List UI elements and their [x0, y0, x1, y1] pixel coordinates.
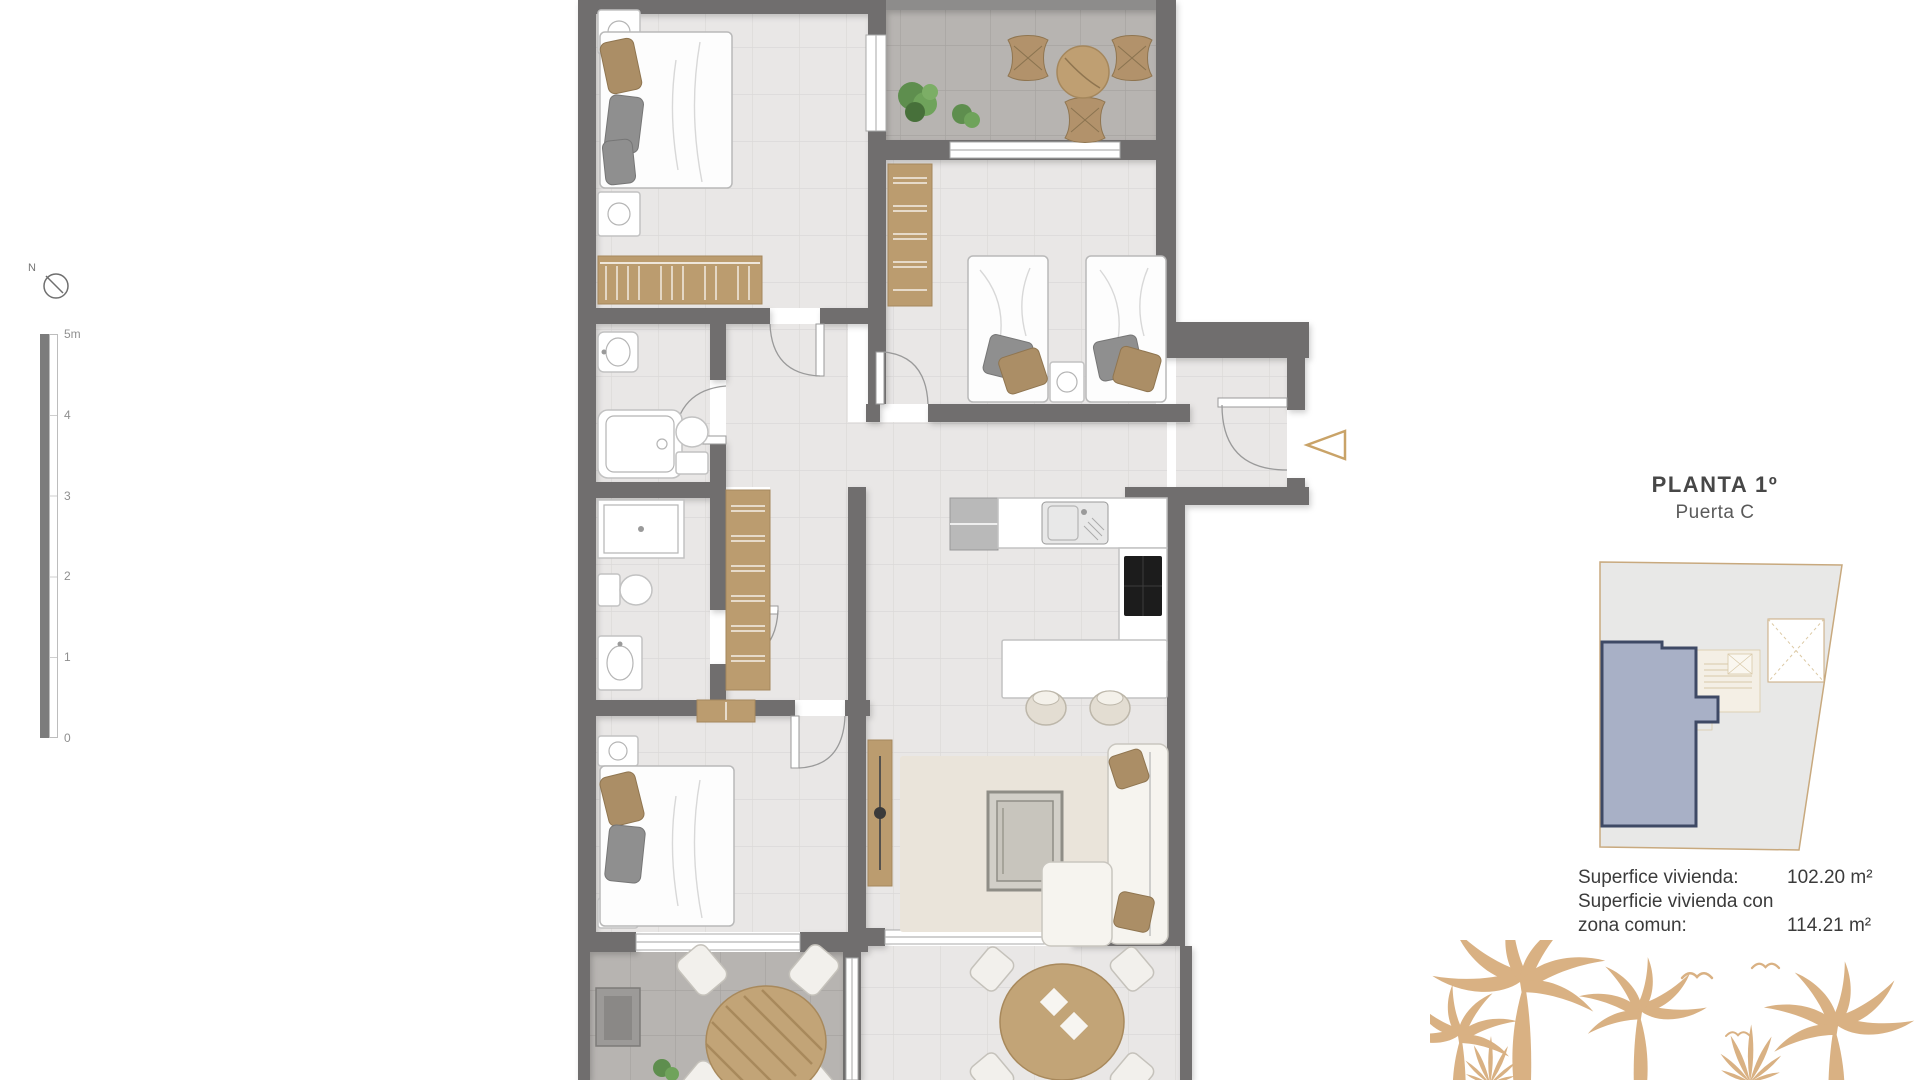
floor-plan: [560, 0, 1360, 1080]
scale-tick-3: 3: [64, 489, 71, 503]
hallway-closet: [726, 490, 770, 690]
area-label-line1: Superficie vivienda con: [1578, 890, 1787, 914]
kitchen-island: [1002, 640, 1167, 698]
location-minimap: [1592, 552, 1872, 862]
tv-console: [868, 740, 892, 886]
area-row: Superfice vivienda: 102.20 m²: [1578, 866, 1920, 890]
scale-tick-2: 2: [64, 569, 71, 583]
living-room: [900, 744, 1168, 946]
area-value: 114.21 m²: [1787, 914, 1920, 938]
palm-icon: [1430, 984, 1519, 1080]
palm-icon: [1762, 961, 1916, 1080]
compass-icon: [38, 268, 78, 308]
plan-title-block: PLANTA 1º Puerta C: [1590, 472, 1840, 524]
dining-table: [1000, 964, 1124, 1080]
surface-areas: Superfice vivienda: 102.20 m² Superficie…: [1578, 866, 1920, 938]
north-indicator: N: [28, 262, 88, 312]
bird-icon: [1752, 964, 1779, 968]
entrance-arrow-icon: [1307, 431, 1345, 459]
scale-bar-light: [49, 334, 58, 738]
scale-tick-4: 4: [64, 408, 71, 422]
kitchen-sink: [1042, 502, 1108, 544]
palm-trees-decoration: [1430, 940, 1920, 1080]
ottoman: [1042, 862, 1112, 946]
north-label: N: [28, 262, 36, 274]
scale-bar-dark: [40, 334, 49, 738]
scale-tick-5m: 5m: [64, 327, 81, 341]
scale-bar: 5m 4 3 2 1 0: [40, 334, 110, 754]
page-title: PLANTA 1º: [1590, 472, 1840, 498]
scale-tick-1: 1: [64, 650, 71, 664]
bird-icon: [1726, 1032, 1750, 1036]
area-label: Superfice vivienda:: [1578, 866, 1787, 890]
page-subtitle: Puerta C: [1590, 502, 1840, 524]
terrace-table: [1057, 46, 1109, 98]
palm-icon: [1577, 957, 1708, 1080]
scale-tick-0: 0: [64, 731, 71, 745]
area-row: Superficie vivienda con zona comun: 114.…: [1578, 890, 1920, 938]
floor-plan-drawing: [560, 0, 1360, 1080]
area-value: 102.20 m²: [1787, 866, 1920, 890]
area-label-line2: zona comun:: [1578, 914, 1787, 938]
wardrobe-twin: [888, 164, 932, 306]
